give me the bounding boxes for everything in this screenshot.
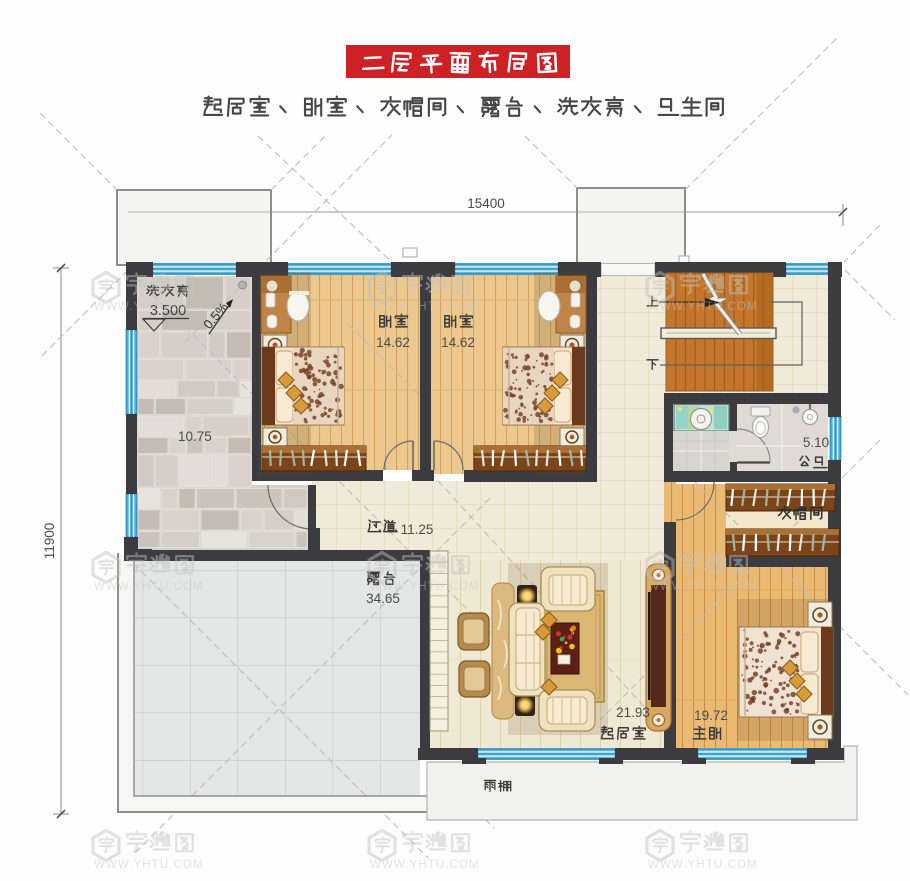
svg-text:10.75: 10.75 bbox=[178, 429, 212, 444]
svg-text:21.93: 21.93 bbox=[616, 705, 650, 720]
svg-text:34.65: 34.65 bbox=[366, 591, 400, 606]
svg-text:15400: 15400 bbox=[467, 196, 505, 211]
svg-text:WWW.YHTU.COM: WWW.YHTU.COM bbox=[94, 581, 204, 593]
svg-text:WWW.YHTU.COM: WWW.YHTU.COM bbox=[370, 859, 480, 871]
svg-text:14.62: 14.62 bbox=[441, 335, 475, 350]
svg-text:WWW.YHTU.COM: WWW.YHTU.COM bbox=[94, 859, 204, 871]
svg-text:11.25: 11.25 bbox=[401, 522, 434, 537]
svg-text:WWW.YHTU.COM: WWW.YHTU.COM bbox=[94, 301, 204, 313]
svg-text:19.72: 19.72 bbox=[694, 708, 728, 723]
svg-text:WWW.YHTU.COM: WWW.YHTU.COM bbox=[648, 301, 758, 313]
svg-text:11900: 11900 bbox=[42, 523, 57, 560]
svg-text:WWW.YHTU.COM: WWW.YHTU.COM bbox=[370, 301, 480, 313]
svg-text:WWW.YHTU.COM: WWW.YHTU.COM bbox=[648, 581, 758, 593]
svg-text:5.10: 5.10 bbox=[803, 435, 829, 450]
svg-text:WWW.YHTU.COM: WWW.YHTU.COM bbox=[648, 859, 758, 871]
svg-text:14.62: 14.62 bbox=[376, 335, 410, 350]
svg-text:WWW.YHTU.COM: WWW.YHTU.COM bbox=[370, 581, 480, 593]
